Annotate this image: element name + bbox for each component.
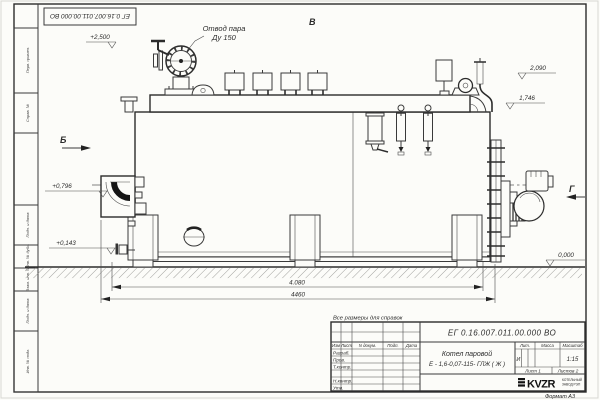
- col-doc: N докум.: [359, 343, 376, 348]
- col-izm: Изм: [332, 343, 340, 348]
- col-list: Лист: [340, 343, 352, 348]
- stamp-podp-data-1: Подп. и дата: [25, 212, 30, 238]
- elevation-1746-label: 1,746: [519, 95, 535, 102]
- view-v-label: В: [309, 17, 316, 27]
- stamp-inv-dubl: Инв. № дубл.: [25, 244, 30, 269]
- format-label: Формат А3: [545, 394, 576, 400]
- elevation-0143-label: +0,143: [56, 240, 76, 247]
- logo-subtext-1: КОТЕЛЬНЫЙ: [562, 378, 583, 382]
- title-doc-number: ЕГ 0.16.007.011.00.000 ВО: [448, 329, 556, 338]
- top-platform: [150, 95, 486, 112]
- row-tkontr: Т.контр.: [333, 364, 352, 369]
- reference-note: Все размеры для справок: [333, 316, 403, 322]
- lit-header: Лит.: [519, 343, 530, 348]
- sheets-total: Листов 2: [557, 369, 579, 374]
- support-middle: [290, 215, 320, 267]
- elevation-2500-label: +2,500: [90, 34, 110, 41]
- scale-value: 1:15: [567, 357, 579, 363]
- row-nkontr: Н.контр.: [333, 378, 352, 383]
- row-utv: Утв.: [333, 385, 343, 390]
- rotated-number-text: ЕГ 0.16.007.011.00.000 ВО: [50, 12, 130, 19]
- lit-value: И: [516, 357, 520, 363]
- product-name: Котел паровой: [442, 350, 492, 358]
- stamp-sprav-no: Справ. №: [25, 103, 30, 122]
- logo-text: KVZR: [527, 379, 556, 391]
- sheet-number: Лист 1: [524, 369, 541, 374]
- ground: [25, 267, 585, 278]
- support-right: [452, 215, 482, 267]
- dimension-4460-label: 4460: [291, 292, 306, 299]
- stamp-inv-podl: Инв. № подл.: [25, 349, 30, 374]
- scale-header: Масштаб: [562, 343, 583, 348]
- view-g-label: Г: [569, 184, 575, 194]
- logo-subtext-2: ЗАВОД РЭП: [562, 383, 581, 387]
- elevation-0000-label: 0,000: [558, 252, 574, 259]
- product-designation: Е - 1,6-0,07-115- ГЛЖ ( Ж ): [429, 361, 505, 368]
- view-b-label: Б: [60, 135, 67, 145]
- row-razrab: Разраб.: [333, 350, 350, 355]
- dimension-4080-label: 4.080: [289, 280, 305, 287]
- steam-callout-line1: Отвод пара: [203, 24, 246, 33]
- row-prov: Пров.: [333, 357, 345, 362]
- elevation-2090-label: 2,090: [529, 65, 546, 72]
- stamp-podp-data-2: Подп. и дата: [25, 298, 30, 324]
- mass-header: Масса: [541, 343, 554, 348]
- drawing-sheet: Перв. примен. Справ. № Подп. и дата Инв.…: [0, 0, 600, 400]
- elevation-0796-label: +0,796: [52, 183, 72, 190]
- stamp-perv-primen: Перв. примен.: [25, 47, 30, 74]
- burner-scroll: [514, 191, 544, 221]
- col-podp: Подп.: [387, 343, 398, 348]
- burner-plate: [501, 181, 510, 237]
- steam-callout-line2: Ду 150: [211, 33, 237, 42]
- col-data: Дата: [405, 343, 418, 348]
